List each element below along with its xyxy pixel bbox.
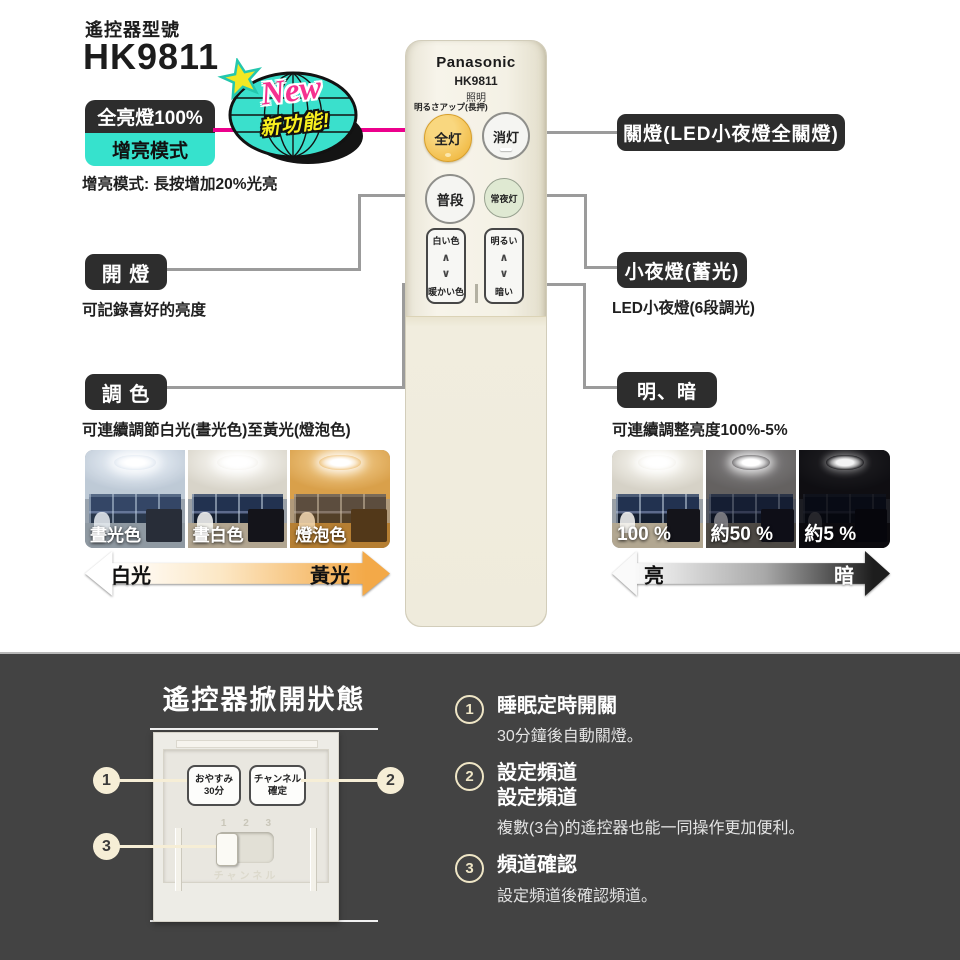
sleep-button-line2: 30分 [204, 786, 224, 797]
ceiling-lamp [114, 455, 156, 470]
photo-window [192, 494, 284, 524]
model-code: HK9811 [83, 36, 219, 78]
panel-ridge-right [310, 828, 317, 891]
channel-confirm-button[interactable]: チャンネル 確定 [249, 765, 306, 806]
rocker-divider [475, 284, 478, 303]
legend-num-2: 2 [455, 762, 484, 791]
color-photo-strip: 晝光色 晝白色 燈泡色 [85, 450, 390, 548]
dim-note: 可連續調整亮度100%-5% [612, 418, 788, 440]
photo-label: 約5 % [804, 519, 856, 546]
full-light-tag: 全亮燈100% [85, 100, 215, 133]
panel-tab [176, 740, 318, 748]
marker-2-line [301, 779, 378, 782]
dark-label: 暗 [834, 559, 854, 588]
off-button-label: 消灯 [493, 127, 519, 146]
up-arrow-icon: ∧ [500, 254, 509, 262]
ceiling-lamp [826, 455, 864, 470]
normal-button[interactable]: 普段 [425, 174, 475, 224]
channel-slider-knob[interactable] [216, 833, 238, 866]
photo-window [294, 494, 386, 524]
photo-brightness-100: 100 % [612, 450, 703, 548]
on-tag: 開 燈 [85, 254, 167, 290]
legend-item-2: 2 設定頻道 設定頻道 複數(3台)的遙控器也能一同操作更加便利。 [455, 761, 935, 838]
remote-flip-cover[interactable] [406, 316, 546, 626]
dim-tag: 明、暗 [617, 372, 717, 408]
down-arrow-icon: ∨ [442, 270, 451, 278]
on-connector-h2 [167, 268, 361, 271]
all-on-indicator-dot [445, 153, 451, 157]
tone-tag: 調 色 [85, 374, 167, 410]
legend-sub-3: 設定頻道後確認頻道。 [497, 882, 657, 906]
photo-label: 約50 % [711, 519, 773, 546]
tone-note: 可連續調節白光(晝光色)至黃光(燈泡色) [82, 418, 351, 440]
tone-connector-h2 [167, 386, 405, 389]
photo-label: 晝光色 [90, 521, 141, 546]
photo-window [616, 494, 699, 524]
new-feature-badge: New 新功能! [213, 58, 373, 176]
photo-furniture [855, 509, 888, 542]
brighter-label: 明るい [490, 234, 517, 247]
ceiling-lamp [217, 455, 259, 470]
legend-item-1: 1 睡眠定時開關 30分鐘後自動關燈。 [455, 694, 935, 746]
darker-label: 暗い [495, 285, 513, 298]
brightness-gradient-arrow: 亮 暗 [612, 551, 890, 596]
photo-furniture [248, 509, 284, 542]
marker-1-line [119, 779, 187, 782]
flip-open-title: 遙控器掀開狀態 [150, 678, 378, 717]
down-arrow-icon: ∨ [500, 270, 509, 278]
remote-model: HK9811 [406, 74, 546, 88]
photo-daywhite-color: 晝白色 [188, 450, 288, 548]
dim-connector-v [583, 283, 586, 388]
photo-label: 燈泡色 [295, 521, 346, 546]
legend-item-3: 3 頻道確認 設定頻道後確認頻道。 [455, 853, 935, 905]
channel-button-line2: 確定 [268, 786, 287, 797]
legend-title-2: 設定頻道 [497, 761, 805, 785]
remote-control: Panasonic HK9811 照明 明るさアップ(長押) 全灯 消灯 普段 … [405, 40, 547, 627]
normal-button-label: 普段 [437, 189, 464, 209]
legend-title-1: 睡眠定時開關 [497, 694, 643, 718]
photo-brightness-5: 約5 % [799, 450, 890, 548]
photo-furniture [146, 509, 182, 542]
on-connector-v [358, 194, 361, 271]
boost-combo-box: 全亮燈100% 增亮模式 [85, 100, 215, 166]
legend-sub-1: 30分鐘後自動關燈。 [497, 722, 643, 746]
remote-boost-hint: 明るさアップ(長押) [414, 101, 488, 113]
top-rule [150, 728, 378, 730]
marker-3-line [119, 845, 216, 848]
night-connector-h2 [584, 266, 617, 269]
white-light-label: 白光 [111, 559, 151, 588]
color-gradient-arrow: 白光 黃光 [85, 551, 390, 596]
warm-color-label: 暖かい色 [428, 285, 464, 298]
yellow-light-label: 黃光 [310, 559, 350, 588]
legend: 1 睡眠定時開關 30分鐘後自動關燈。 2 設定頻道 設定頻道 複數(3台)的遙… [455, 694, 935, 906]
remote-brand: Panasonic [406, 54, 546, 71]
night-light-button-label: 常夜灯 [490, 192, 517, 205]
flip-open-section: 遙控器掀開狀態 おやすみ 30分 チャンネル 確定 1 2 3 チャンネル 1 … [0, 652, 960, 960]
panel-ridge-left [175, 828, 182, 891]
marker-3: 3 [93, 833, 120, 860]
legend-num-1: 1 [455, 695, 484, 724]
channel-button-line1: チャンネル [254, 774, 301, 785]
night-tag: 小夜燈(蓄光) [617, 252, 747, 288]
off-tag: 關燈(LED小夜燈全關燈) [617, 114, 845, 151]
sleep-timer-button[interactable]: おやすみ 30分 [187, 765, 241, 806]
photo-daylight-color: 晝光色 [85, 450, 185, 548]
photo-furniture [667, 509, 700, 542]
marker-1: 1 [93, 767, 120, 794]
photo-label: 100 % [617, 524, 671, 546]
legend-title-3: 頻道確認 [497, 853, 657, 877]
marker-2: 2 [377, 767, 404, 794]
sleep-button-line1: おやすみ [195, 774, 233, 785]
off-button[interactable]: 消灯 [482, 112, 530, 160]
legend-num-3: 3 [455, 854, 484, 883]
brightness-photo-strip: 100 % 約50 % 約5 % [612, 450, 890, 548]
all-on-button[interactable]: 全灯 [424, 114, 472, 162]
ceiling-lamp [319, 455, 361, 470]
ceiling-lamp [638, 455, 676, 470]
ceiling-lamp [732, 455, 770, 470]
night-connector-v [584, 194, 587, 269]
off-indicator-bar [500, 148, 512, 151]
all-on-button-label: 全灯 [435, 128, 462, 148]
legend-sub-2: 複數(3台)的遙控器也能一同操作更加便利。 [497, 814, 805, 838]
infographic-root: 遙控器型號 HK9811 全亮燈100% 增亮模式 增亮模式: 長按增加20%光… [0, 0, 960, 960]
photo-bulb-color: 燈泡色 [290, 450, 390, 548]
photo-brightness-50: 約50 % [706, 450, 797, 548]
photo-label: 晝白色 [193, 521, 244, 546]
color-rocker[interactable]: 白い色 ∧ ∨ 暖かい色 [426, 228, 466, 304]
dim-connector-h2 [583, 386, 617, 389]
white-color-label: 白い色 [432, 234, 459, 247]
photo-furniture [351, 509, 387, 542]
night-light-button[interactable]: 常夜灯 [484, 178, 524, 218]
boost-mode-tag: 增亮模式 [85, 133, 215, 166]
night-note: LED小夜燈(6段調光) [612, 296, 755, 318]
bright-label: 亮 [644, 559, 664, 588]
on-note: 可記錄喜好的亮度 [82, 298, 206, 320]
photo-window [89, 494, 181, 524]
up-arrow-icon: ∧ [442, 254, 451, 262]
brightness-rocker[interactable]: 明るい ∧ ∨ 暗い [484, 228, 524, 304]
flip-open-panel: おやすみ 30分 チャンネル 確定 1 2 3 チャンネル [153, 732, 339, 922]
legend-title-2b: 設定頻道 [497, 786, 805, 810]
